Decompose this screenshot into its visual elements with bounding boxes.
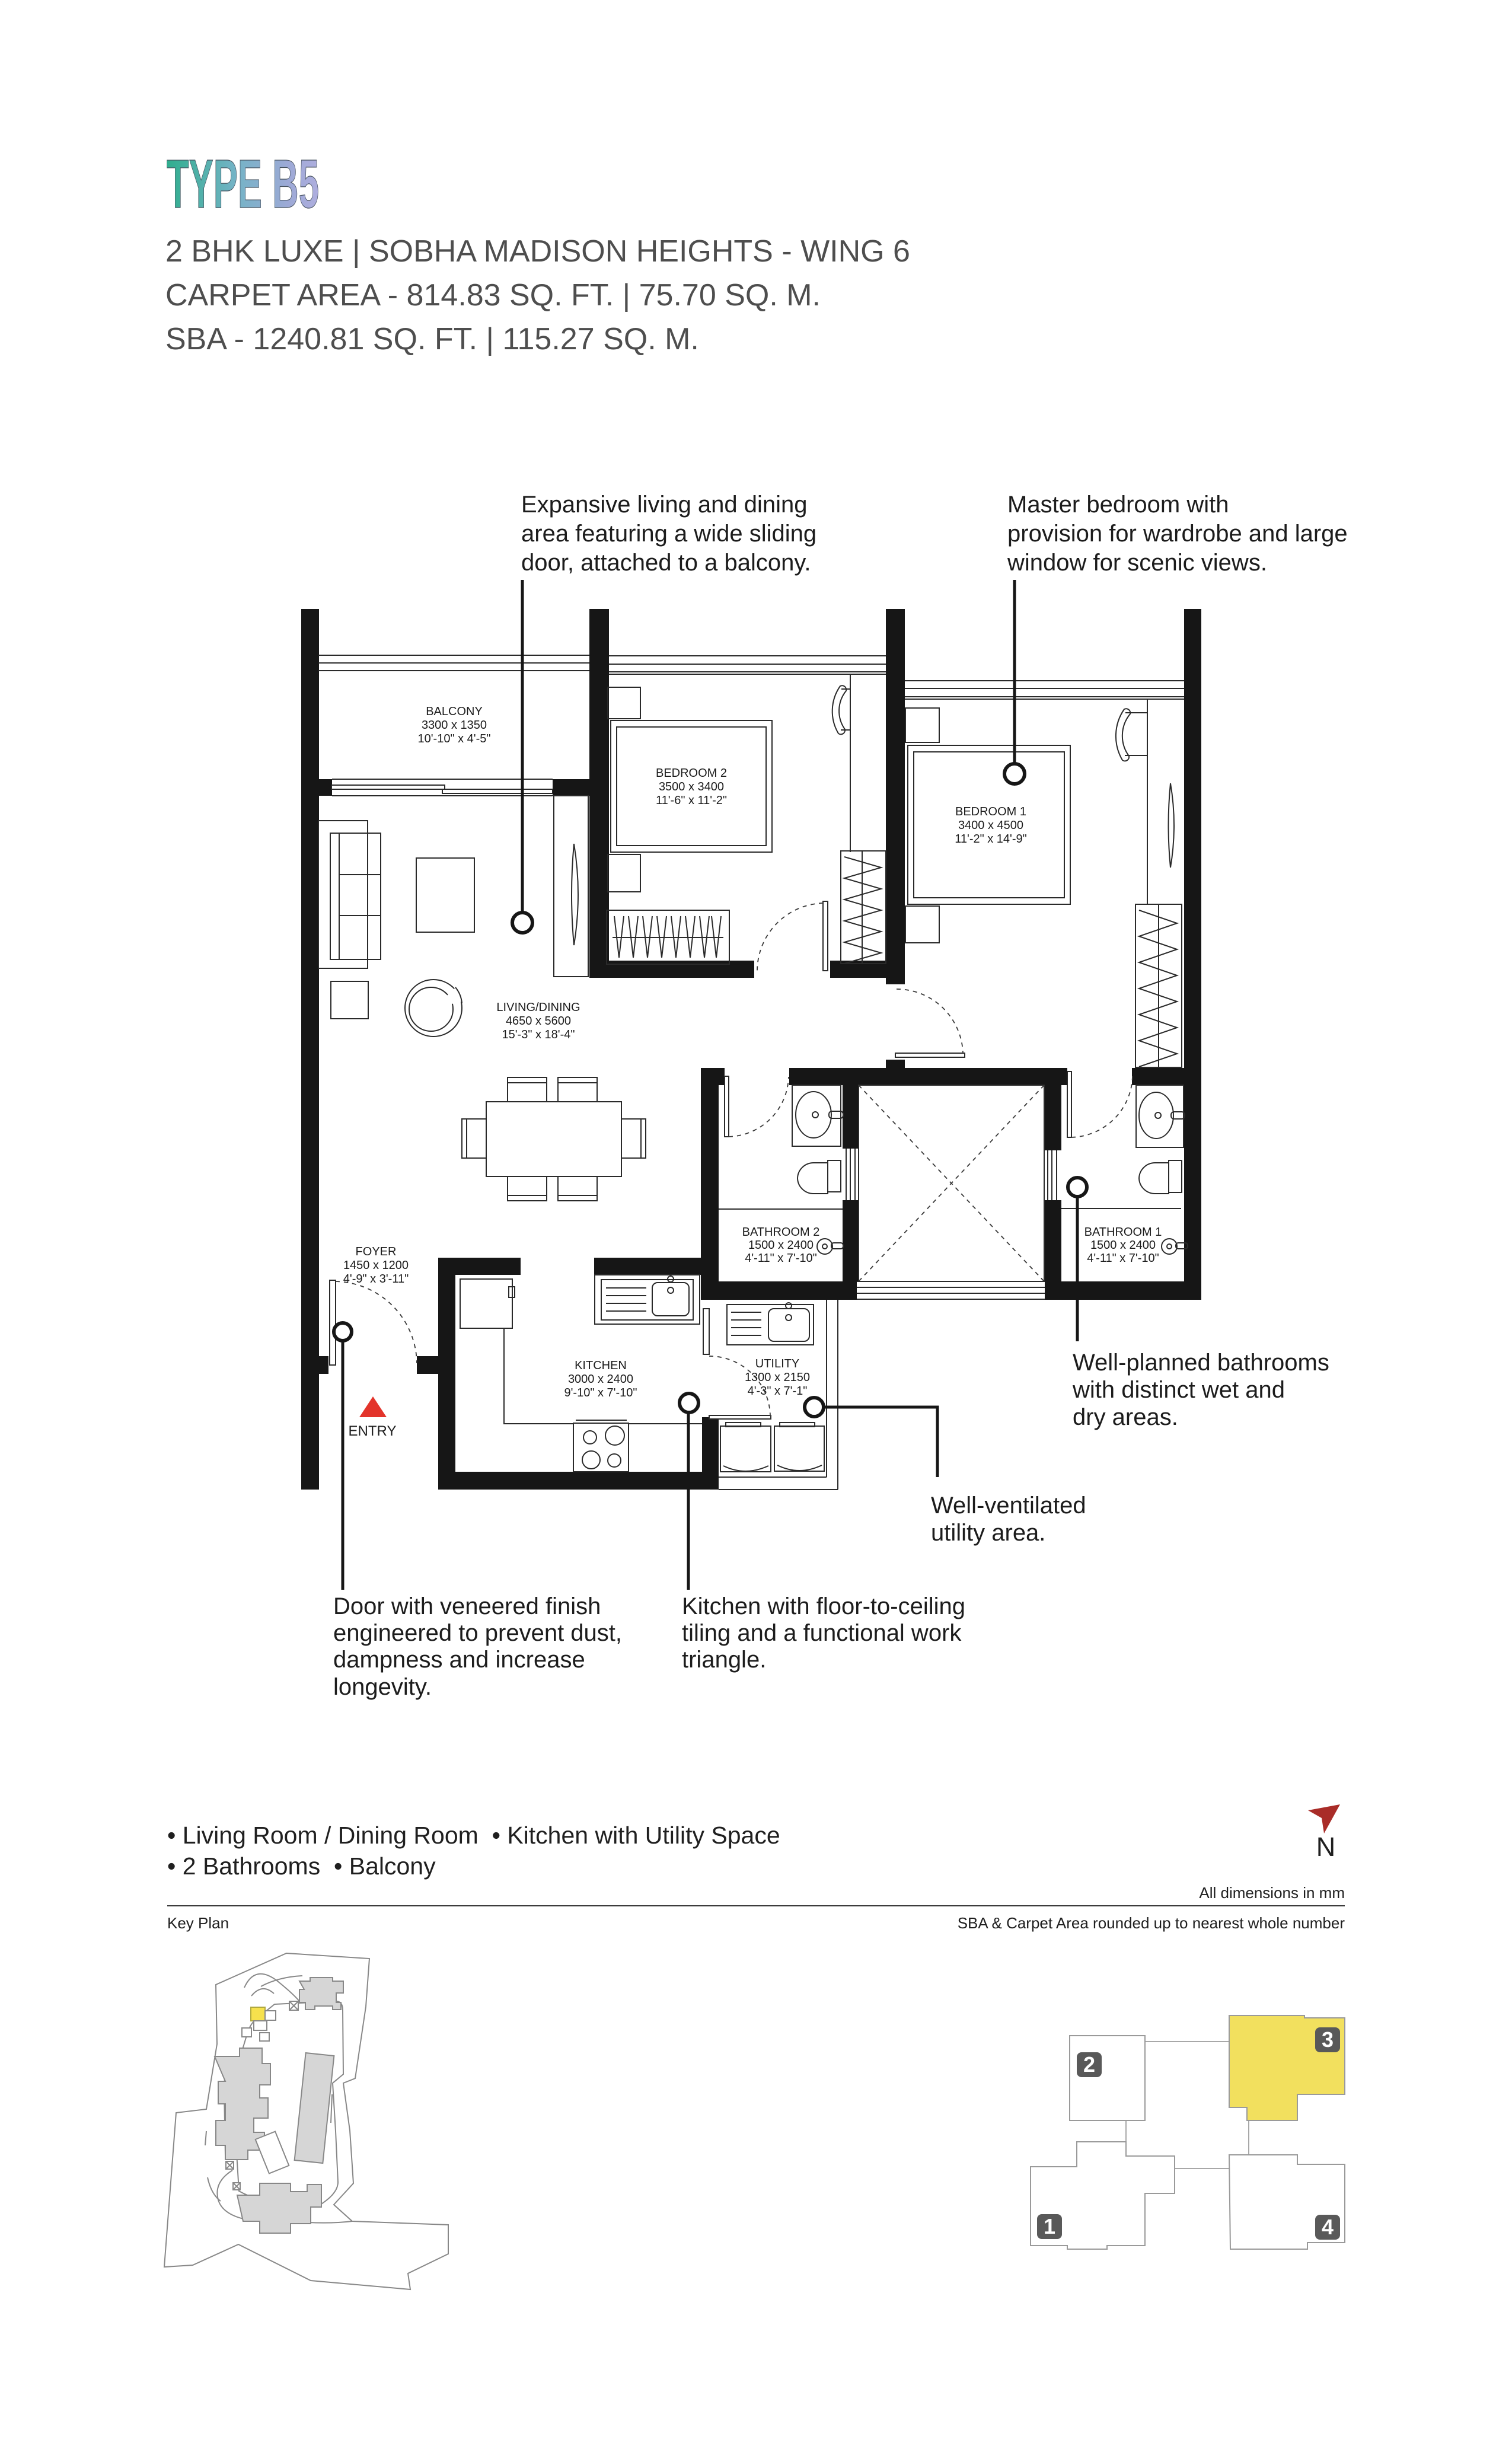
svg-text:UTILITY: UTILITY [755,1357,799,1370]
svg-text:FOYER: FOYER [356,1245,397,1258]
svg-text:1300 x 2150: 1300 x 2150 [745,1371,810,1384]
svg-text:4'-11" x 7'-10": 4'-11" x 7'-10" [1087,1252,1159,1265]
svg-text:ENTRY: ENTRY [349,1423,397,1439]
svg-text:utility area.: utility area. [931,1520,1045,1546]
svg-text:BEDROOM 2: BEDROOM 2 [656,767,727,780]
svg-text:door, attached to a balcony.: door, attached to a balcony. [521,550,811,576]
svg-text:1500 x 2400: 1500 x 2400 [748,1239,814,1252]
svg-text:Well-planned bathrooms: Well-planned bathrooms [1073,1350,1329,1376]
svg-text:4'-11" x 7'-10": 4'-11" x 7'-10" [745,1252,817,1265]
svg-text:KITCHEN: KITCHEN [575,1359,627,1372]
svg-text:provision for wardrobe and lar: provision for wardrobe and large [1007,521,1348,547]
svg-text:3300 x 1350: 3300 x 1350 [422,719,487,732]
svg-text:BALCONY: BALCONY [426,705,483,718]
svg-text:dampness and increase: dampness and increase [333,1647,585,1673]
svg-text:2: 2 [1083,2052,1095,2077]
svg-text:area featuring a wide sliding: area featuring a wide sliding [521,521,816,547]
svg-text:BATHROOM 1: BATHROOM 1 [1084,1226,1162,1239]
svg-text:BATHROOM 2: BATHROOM 2 [742,1226,820,1239]
svg-text:All dimensions in mm: All dimensions in mm [1199,1884,1345,1902]
svg-text:TYPE B5: TYPE B5 [167,145,319,222]
svg-text:3000 x 2400: 3000 x 2400 [568,1373,633,1386]
svg-text:1: 1 [1044,2214,1055,2238]
svg-text:Expansive living and dining: Expansive living and dining [521,492,808,518]
svg-text:3500 x 3400: 3500 x 3400 [659,780,724,793]
svg-text:• Living Room / Dining Room •: • Living Room / Dining Room • Kitchen wi… [167,1822,780,1849]
svg-text:SBA & Carpet Area rounded up t: SBA & Carpet Area rounded up to nearest … [958,1914,1345,1932]
svg-text:SBA - 1240.81 SQ. FT. | 115.27: SBA - 1240.81 SQ. FT. | 115.27 SQ. M. [165,322,699,356]
svg-text:tiling and a functional work: tiling and a functional work [682,1620,962,1646]
svg-text:BEDROOM 1: BEDROOM 1 [955,805,1026,818]
svg-text:4: 4 [1322,2215,1334,2239]
svg-text:3400 x 4500: 3400 x 4500 [958,819,1023,832]
svg-text:Key Plan: Key Plan [167,1914,229,1932]
svg-text:3: 3 [1322,2027,1334,2052]
svg-text:Well-ventilated: Well-ventilated [931,1493,1086,1519]
svg-text:1500 x 2400: 1500 x 2400 [1090,1239,1156,1252]
svg-text:11'-2" x 14'-9": 11'-2" x 14'-9" [955,833,1027,846]
svg-text:9'-10" x 7'-10": 9'-10" x 7'-10" [564,1386,637,1399]
svg-text:Master bedroom with: Master bedroom with [1007,492,1229,518]
svg-text:Door with veneered finish: Door with veneered finish [333,1593,601,1619]
svg-text:4650 x 5600: 4650 x 5600 [506,1015,571,1028]
svg-text:triangle.: triangle. [682,1647,766,1673]
svg-text:4'-3" x 7'-1": 4'-3" x 7'-1" [748,1385,808,1398]
svg-text:CARPET AREA - 814.83 SQ. FT. |: CARPET AREA - 814.83 SQ. FT. | 75.70 SQ.… [165,278,821,312]
svg-text:1450 x 1200: 1450 x 1200 [343,1259,409,1272]
svg-text:2 BHK LUXE | SOBHA MADISON HEI: 2 BHK LUXE | SOBHA MADISON HEIGHTS - WIN… [165,234,910,269]
svg-text:LIVING/DINING: LIVING/DINING [496,1001,580,1014]
svg-text:engineered to prevent dust,: engineered to prevent dust, [333,1620,622,1646]
svg-text:with distinct wet and: with distinct wet and [1072,1377,1285,1403]
svg-text:N: N [1316,1832,1336,1862]
svg-text:• 2 Bathrooms • Balcony: • 2 Bathrooms • Balcony [167,1852,436,1880]
svg-text:15'-3" x 18'-4": 15'-3" x 18'-4" [502,1028,575,1041]
svg-text:11'-6" x 11'-2": 11'-6" x 11'-2" [656,794,727,807]
svg-text:Kitchen with floor-to-ceiling: Kitchen with floor-to-ceiling [682,1593,965,1619]
svg-text:longevity.: longevity. [333,1674,432,1700]
svg-text:dry areas.: dry areas. [1073,1404,1178,1430]
svg-text:4'-9" x 3'-11": 4'-9" x 3'-11" [343,1273,409,1286]
svg-text:10'-10" x 4'-5": 10'-10" x 4'-5" [417,732,490,745]
svg-text:window for scenic views.: window for scenic views. [1007,550,1267,576]
